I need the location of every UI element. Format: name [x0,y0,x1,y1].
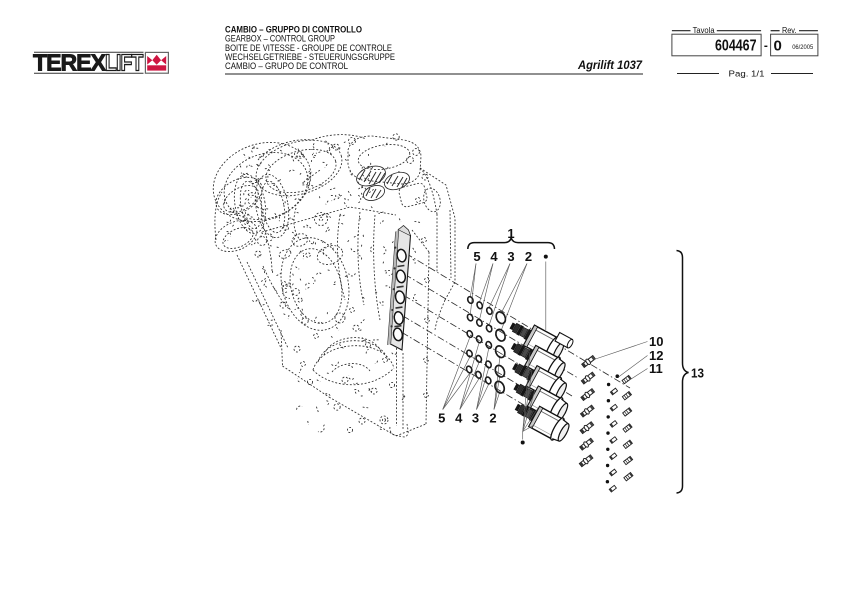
svg-text:10: 10 [649,334,663,349]
svg-text:0: 0 [774,37,782,54]
svg-text:Pag. 1/1: Pag. 1/1 [729,69,766,78]
svg-text:4: 4 [455,411,463,426]
svg-text:2: 2 [489,411,496,426]
svg-text:5: 5 [473,249,480,264]
svg-text:2: 2 [525,249,532,264]
svg-text:4: 4 [490,249,498,264]
svg-text:604467: 604467 [715,38,757,55]
svg-text:TEREX: TEREX [33,50,106,76]
svg-text:06/2005: 06/2005 [792,44,813,51]
svg-text:3: 3 [507,249,514,264]
svg-text:CAMBIO – GRUPO DE CONTROL: CAMBIO – GRUPO DE CONTROL [225,61,348,71]
svg-text:3: 3 [472,411,479,426]
svg-text:13: 13 [691,366,704,381]
svg-text:11: 11 [649,361,663,376]
svg-text:-: - [764,39,768,53]
svg-text:5: 5 [438,411,445,426]
svg-text:LIFT: LIFT [105,50,144,76]
svg-text:Agrilift 1037: Agrilift 1037 [577,60,643,72]
